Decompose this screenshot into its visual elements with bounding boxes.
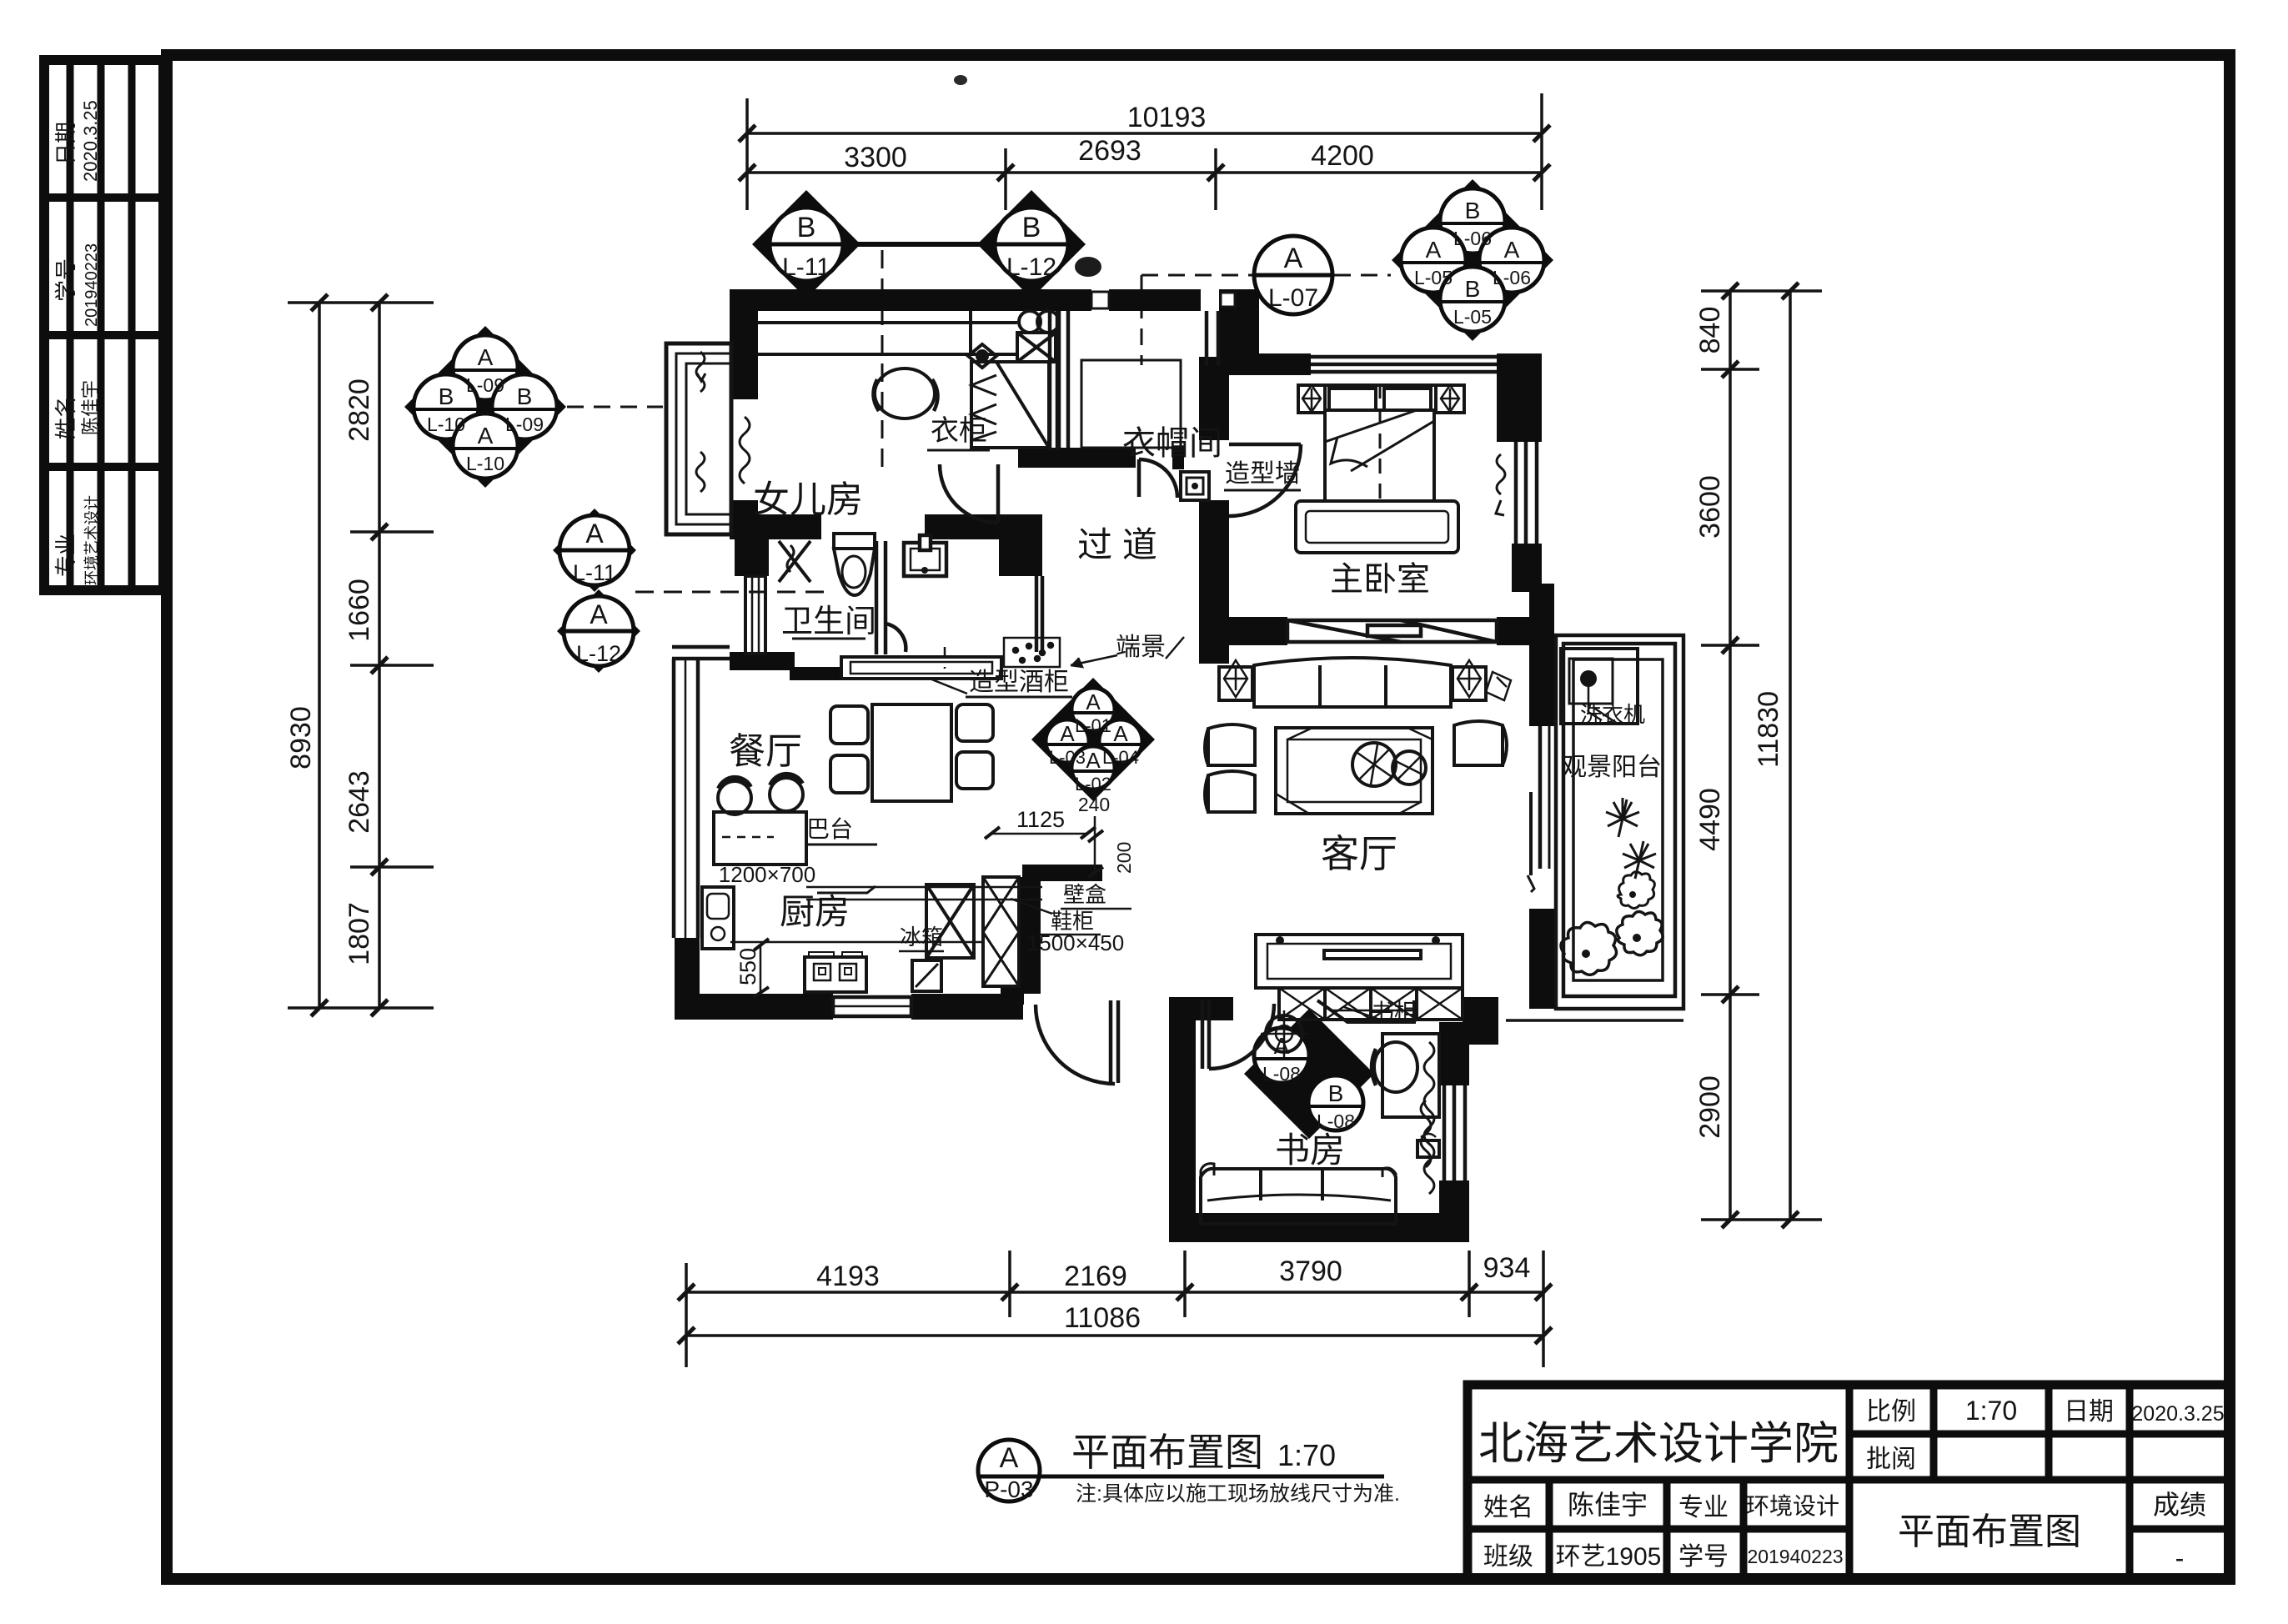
svg-text:1125: 1125	[1016, 807, 1065, 832]
svg-text:L-07: L-07	[1268, 284, 1318, 312]
svg-text:A: A	[1113, 721, 1128, 746]
svg-text:北海艺术设计学院: 北海艺术设计学院	[1478, 1419, 1839, 1469]
svg-text:1:70: 1:70	[1965, 1396, 2017, 1426]
svg-text:B: B	[797, 212, 816, 243]
svg-text:B: B	[517, 383, 533, 409]
svg-text:B: B	[1465, 276, 1481, 302]
svg-text:840: 840	[1694, 307, 1726, 354]
svg-text:2020.3.25: 2020.3.25	[2131, 1402, 2224, 1426]
svg-text:A: A	[1086, 748, 1101, 773]
svg-text:L-06: L-06	[1493, 267, 1531, 288]
svg-text:A: A	[1426, 237, 1442, 263]
svg-text:1200×700: 1200×700	[719, 862, 815, 887]
svg-text:日期: 日期	[2064, 1398, 2114, 1426]
svg-text:A: A	[1086, 689, 1101, 714]
svg-text:L-08: L-08	[1262, 1063, 1301, 1085]
svg-text:1807: 1807	[344, 902, 375, 965]
svg-text:L-12: L-12	[576, 641, 621, 666]
svg-text:环境艺术设计: 环境艺术设计	[83, 495, 100, 585]
svg-text:201940223: 201940223	[83, 243, 101, 327]
svg-text:-: -	[2175, 1543, 2185, 1573]
svg-text:注:具体应以施工现场放线尺寸为准.: 注:具体应以施工现场放线尺寸为准.	[1076, 1482, 1400, 1506]
svg-text:2020.3.25: 2020.3.25	[80, 100, 101, 182]
svg-text:B: B	[439, 383, 454, 409]
svg-text:环艺1905: 环艺1905	[1556, 1543, 1662, 1571]
svg-text:平面布置图: 平面布置图	[1071, 1431, 1263, 1474]
svg-text:L-06: L-06	[1453, 228, 1492, 249]
svg-text:A: A	[585, 519, 604, 549]
svg-text:巴台: 巴台	[806, 816, 853, 842]
svg-text:11830: 11830	[1753, 691, 1784, 768]
svg-text:陈佳宇: 陈佳宇	[80, 380, 101, 435]
svg-text:A: A	[590, 599, 608, 629]
svg-text:P-03: P-03	[984, 1476, 1033, 1502]
svg-text:1660: 1660	[344, 579, 375, 642]
svg-text:8930: 8930	[285, 706, 317, 769]
svg-text:书柜: 书柜	[1371, 1000, 1417, 1025]
svg-text:专业: 专业	[53, 534, 78, 577]
svg-text:B: B	[1465, 198, 1481, 223]
svg-text:班级: 班级	[1483, 1543, 1533, 1571]
svg-text:姓名: 姓名	[53, 396, 78, 439]
svg-text:2169: 2169	[1064, 1261, 1127, 1292]
svg-text:4200: 4200	[1311, 140, 1374, 172]
svg-text:L-12: L-12	[1006, 253, 1056, 281]
svg-text:L-09: L-09	[505, 414, 544, 435]
svg-text:3300: 3300	[844, 142, 907, 173]
svg-text:L-08: L-08	[1317, 1110, 1355, 1132]
svg-text:衣帽间: 衣帽间	[1122, 425, 1222, 462]
svg-text:A: A	[1060, 721, 1075, 746]
svg-text:端景: 端景	[1116, 634, 1166, 661]
svg-text:11086: 11086	[1064, 1302, 1141, 1334]
svg-text:200: 200	[1113, 842, 1135, 874]
svg-text:550: 550	[735, 948, 760, 985]
svg-text:3600: 3600	[1694, 475, 1726, 539]
svg-text:成绩: 成绩	[2153, 1490, 2206, 1520]
svg-text:L-11: L-11	[573, 560, 616, 585]
svg-text:客厅: 客厅	[1321, 832, 1397, 875]
svg-text:L-09: L-09	[466, 374, 504, 396]
svg-text:餐厅: 餐厅	[729, 731, 802, 772]
svg-text:1500×450: 1500×450	[1027, 930, 1124, 955]
svg-text:A: A	[478, 423, 494, 449]
svg-text:L-10: L-10	[466, 453, 504, 474]
svg-text:L-11: L-11	[782, 253, 830, 281]
svg-text:平面布置图: 平面布置图	[1898, 1511, 2081, 1552]
svg-text:L-01: L-01	[1075, 715, 1111, 736]
svg-text:女儿房: 女儿房	[753, 479, 863, 520]
svg-text:1:70: 1:70	[1277, 1438, 1336, 1472]
svg-text:4490: 4490	[1694, 788, 1726, 851]
svg-text:专业: 专业	[1678, 1494, 1729, 1521]
svg-text:934: 934	[1483, 1252, 1531, 1284]
svg-text:240: 240	[1078, 794, 1110, 815]
svg-text:环境设计: 环境设计	[1746, 1493, 1839, 1519]
svg-text:A: A	[478, 344, 494, 370]
svg-text:卫生间: 卫生间	[781, 604, 876, 639]
svg-text:A: A	[1000, 1442, 1019, 1474]
svg-text:L-05: L-05	[1414, 267, 1453, 288]
svg-text:壁盒: 壁盒	[1063, 882, 1106, 907]
svg-text:造型墙: 造型墙	[1225, 460, 1300, 488]
svg-text:B: B	[1022, 212, 1041, 243]
svg-text:2900: 2900	[1694, 1075, 1726, 1139]
svg-text:洗衣机: 洗衣机	[1580, 702, 1645, 727]
svg-text:书房: 书房	[1275, 1130, 1345, 1170]
svg-text:2643: 2643	[344, 770, 375, 834]
svg-text:姓名: 姓名	[1483, 1494, 1533, 1521]
svg-text:L-04: L-04	[1102, 747, 1139, 768]
svg-text:L-02: L-02	[1075, 774, 1111, 794]
svg-text:批阅: 批阅	[1866, 1446, 1916, 1473]
svg-text:厨房: 厨房	[780, 892, 850, 931]
svg-text:2820: 2820	[344, 378, 375, 442]
svg-text:L-05: L-05	[1453, 306, 1492, 328]
svg-text:陈佳宇: 陈佳宇	[1568, 1490, 1648, 1520]
svg-text:过 道: 过 道	[1077, 525, 1157, 564]
svg-text:冰箱: 冰箱	[900, 925, 943, 950]
svg-text:4193: 4193	[816, 1261, 880, 1292]
svg-text:L-10: L-10	[427, 414, 465, 435]
svg-text:3790: 3790	[1279, 1256, 1342, 1287]
svg-text:造型酒柜: 造型酒柜	[969, 669, 1069, 696]
svg-text:A: A	[1504, 237, 1520, 263]
svg-text:201940223: 201940223	[1747, 1546, 1843, 1567]
svg-text:观景阳台: 观景阳台	[1562, 754, 1662, 781]
svg-text:比例: 比例	[1866, 1398, 1916, 1426]
svg-text:A: A	[1284, 243, 1303, 274]
svg-text:B: B	[1328, 1080, 1344, 1106]
svg-text:学号: 学号	[1678, 1543, 1729, 1571]
svg-text:10193: 10193	[1127, 102, 1207, 133]
svg-text:2693: 2693	[1078, 135, 1141, 167]
svg-text:学号: 学号	[53, 258, 78, 302]
svg-text:主卧室: 主卧室	[1330, 561, 1430, 598]
svg-text:日期: 日期	[53, 122, 78, 165]
svg-text:衣柜: 衣柜	[931, 415, 987, 447]
svg-text:L-03: L-03	[1049, 747, 1086, 768]
